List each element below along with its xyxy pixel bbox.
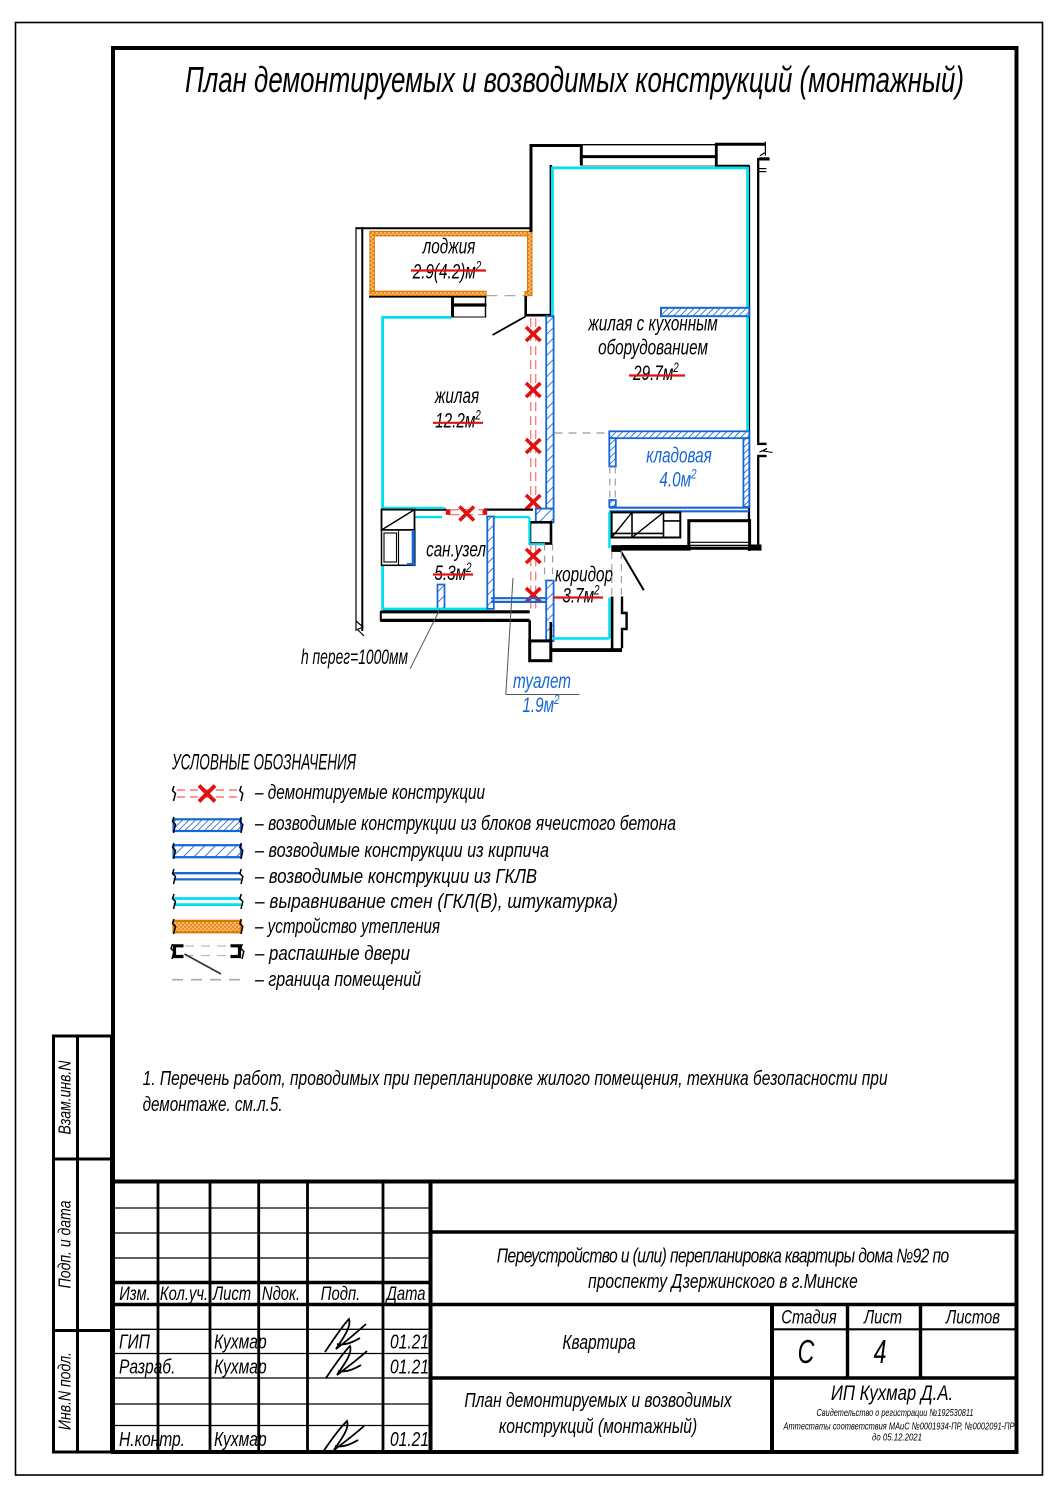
svg-text:жилая: жилая <box>434 383 479 407</box>
svg-text:оборудованием: оборудованием <box>598 335 708 359</box>
svg-text:Н.контр.: Н.контр. <box>119 1428 185 1450</box>
svg-text:– распашные двери: – распашные двери <box>254 943 410 965</box>
svg-text:План демонтируемых и возвод: План демонтируемых и возводимых конструк… <box>185 59 964 100</box>
svg-text:Квартира: Квартира <box>562 1331 635 1353</box>
svg-text:1.9м2: 1.9м2 <box>522 691 559 716</box>
svg-text:– граница помещений: – граница помещений <box>254 969 421 991</box>
svg-text:– устройство утепления: – устройство утепления <box>254 916 440 938</box>
svg-text:проспекту Дзержинского в г.Мин: проспекту Дзержинского в г.Минске <box>588 1270 858 1292</box>
svg-text:Взам.инв.N: Взам.инв.N <box>55 1060 75 1134</box>
svg-text:12.2м2: 12.2м2 <box>435 407 481 432</box>
svg-text:– демонтируемые конструкции: – демонтируемые конструкции <box>254 782 485 804</box>
svg-text:кладовая: кладовая <box>646 443 711 467</box>
svg-text:01.21: 01.21 <box>390 1331 429 1353</box>
svg-text:– возводимые конструкции из бл: – возводимые конструкции из блоков ячеис… <box>254 813 676 835</box>
svg-text:туалет: туалет <box>513 668 571 692</box>
svg-text:Разраб.: Разраб. <box>119 1356 175 1378</box>
svg-text:Подп.: Подп. <box>321 1283 360 1304</box>
svg-text:Кухмар: Кухмар <box>214 1331 267 1353</box>
svg-text:Лист: Лист <box>212 1283 251 1304</box>
svg-text:демонтаже. см.л.5.: демонтаже. см.л.5. <box>143 1094 283 1116</box>
svg-text:Инв.N подл.: Инв.N подл. <box>55 1352 75 1430</box>
svg-text:УСЛОВНЫЕ ОБОЗНАЧЕНИЯ: УСЛОВНЫЕ ОБОЗНАЧЕНИЯ <box>171 750 356 775</box>
svg-text:План демонтируемых и возводимы: План демонтируемых и возводимых <box>464 1389 732 1411</box>
svg-text:h перег=1000мм: h перег=1000мм <box>301 646 408 669</box>
svg-text:4.0м2: 4.0м2 <box>659 466 696 491</box>
svg-text:Дата: Дата <box>385 1283 426 1304</box>
svg-text:Свидетельство о регистрации №1: Свидетельство о регистрации №192530811 <box>817 1407 974 1419</box>
svg-text:Кухмар: Кухмар <box>214 1428 267 1450</box>
svg-text:конструкций (монтажный): конструкций (монтажный) <box>499 1415 697 1437</box>
svg-text:жилая с кухонным: жилая с кухонным <box>587 311 718 335</box>
svg-text:– возводимые конструкции из ГК: – возводимые конструкции из ГКЛВ <box>254 866 537 888</box>
svg-text:Стадия: Стадия <box>781 1307 836 1328</box>
svg-text:ГИП: ГИП <box>119 1331 150 1353</box>
svg-text:01.21: 01.21 <box>390 1356 429 1378</box>
svg-text:01.21: 01.21 <box>390 1428 429 1450</box>
svg-text:Подп. и дата: Подп. и дата <box>55 1201 75 1289</box>
svg-text:ИП Кухмар Д.А.: ИП Кухмар Д.А. <box>831 1382 953 1405</box>
svg-text:29.7м2: 29.7м2 <box>632 359 679 384</box>
svg-text:до 05.12.2021: до 05.12.2021 <box>872 1432 922 1444</box>
svg-text:3.7м2: 3.7м2 <box>562 582 599 607</box>
svg-text:Кол.уч.: Кол.уч. <box>160 1283 208 1304</box>
svg-text:– выравнивание стен (ГКЛ(В), ш: – выравнивание стен (ГКЛ(В), штукатурка) <box>254 891 618 913</box>
svg-text:Кухмар: Кухмар <box>214 1356 267 1378</box>
svg-text:Nдок.: Nдок. <box>262 1283 300 1304</box>
svg-text:Изм.: Изм. <box>119 1283 151 1304</box>
svg-text:лоджия: лоджия <box>422 234 475 258</box>
svg-text:Листов: Листов <box>945 1307 1000 1328</box>
svg-text:– возводимые конструкции из ки: – возводимые конструкции из кирпича <box>254 840 549 862</box>
svg-text:4: 4 <box>874 1334 887 1371</box>
svg-text:сан.узел: сан.узел <box>426 537 486 561</box>
svg-text:Лист: Лист <box>863 1307 902 1328</box>
svg-text:С: С <box>798 1334 815 1371</box>
svg-text:5.3м2: 5.3м2 <box>434 559 471 584</box>
svg-text:1. Перечень работ, проводимых: 1. Перечень работ, проводимых при перепл… <box>143 1068 888 1090</box>
svg-text:Переустройство и (или) перепла: Переустройство и (или) перепланировка кв… <box>497 1245 949 1267</box>
